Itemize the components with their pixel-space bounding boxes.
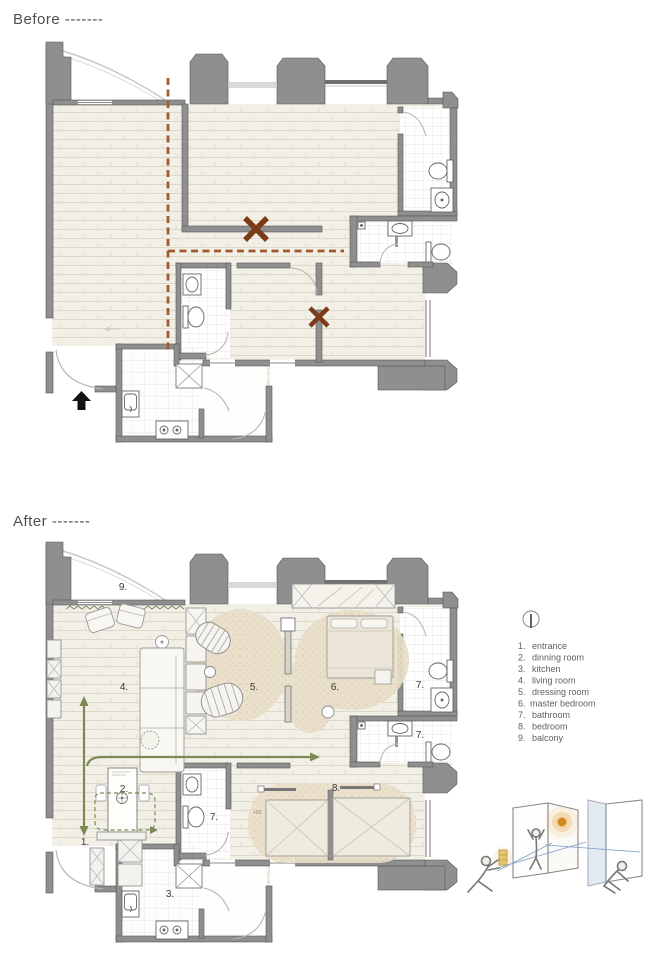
legend-num: 3. — [518, 664, 526, 674]
floorplan-page: Before ------- After ------- — [0, 0, 660, 965]
label-entrance: 1. — [81, 837, 89, 848]
after-title: After ------- — [13, 513, 90, 530]
before-title: Before ------- — [13, 11, 103, 28]
legend-name: entrance — [532, 641, 567, 651]
after-plan: 9. 4. 5. 6. 7. 7. 2. 7. 8. 1. 3. +26 — [46, 542, 458, 942]
label-bath-ensuite: 7. — [416, 680, 424, 691]
legend-name: bathroom — [532, 710, 570, 720]
lamp-object — [494, 847, 512, 869]
legend-name: master bedroom — [530, 699, 596, 709]
label-master: 6. — [331, 682, 339, 693]
legend-name: balcony — [532, 733, 564, 743]
legend-num: 5. — [518, 687, 526, 697]
legend-list: 1. entrance 2. dinning room 3. kitchen 4… — [518, 641, 596, 743]
legend-num: 2. — [518, 653, 526, 663]
legend-name: living room — [532, 676, 576, 686]
label-balcony: 9. — [119, 582, 127, 593]
legend-num: 4. — [518, 676, 526, 686]
concept-sketch — [468, 800, 642, 893]
entrance-arrow-icon — [72, 391, 91, 410]
label-dressing: 5. — [250, 682, 258, 693]
label-living: 4. — [120, 682, 128, 693]
label-dining: 2. — [120, 784, 128, 795]
label-kitchen: 3. — [166, 889, 174, 900]
legend-name: bedroom — [532, 722, 568, 732]
legend-num: 1. — [518, 641, 526, 651]
wall-light-icon — [546, 806, 578, 838]
before-plan — [46, 42, 458, 442]
plans-canvas: Before ------- After ------- — [0, 0, 660, 965]
legend: 1. entrance 2. dinning room 3. kitchen 4… — [518, 611, 596, 743]
legend-name: dressing room — [532, 687, 589, 697]
legend-num: 8. — [518, 722, 526, 732]
figure-reclining — [468, 857, 499, 893]
legend-num: 9. — [518, 733, 526, 743]
legend-name: dinning room — [532, 653, 584, 663]
label-level-note: +26 — [253, 810, 262, 816]
legend-name: kitchen — [532, 664, 561, 674]
label-bath-second: 7. — [416, 730, 424, 741]
label-bath-mid: 7. — [210, 812, 218, 823]
legend-num: 7. — [518, 710, 526, 720]
label-bedroom: 8. — [332, 783, 340, 794]
north-indicator-icon — [523, 611, 539, 628]
legend-num: 6. — [518, 699, 526, 709]
